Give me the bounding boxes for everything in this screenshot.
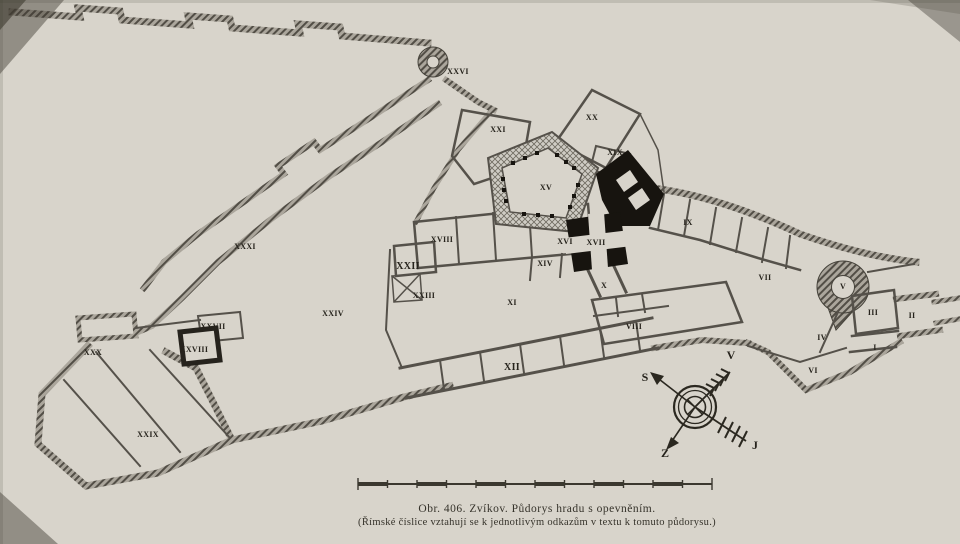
room-label-xix: XIX bbox=[607, 149, 623, 157]
room-label-i: I bbox=[873, 344, 876, 352]
room-label-xii: XII bbox=[504, 363, 520, 373]
room-label-xviii: XVIII bbox=[431, 236, 453, 244]
room-label-ii: II bbox=[909, 312, 916, 320]
figure-caption: Obr. 406. Zvíkov. Půdorys hradu s opevně… bbox=[114, 503, 960, 528]
room-label-xxx: XXX bbox=[84, 349, 102, 357]
room-label-xxii: XXII bbox=[396, 262, 419, 272]
room-label-xiv: XIV bbox=[537, 260, 553, 268]
room-label-xxvi: XXVI bbox=[447, 68, 469, 76]
room-label-x: X bbox=[601, 282, 607, 290]
room-label-iii: III bbox=[868, 309, 878, 317]
room-label-xv: XV bbox=[540, 184, 552, 192]
room-label-xvi: XVI bbox=[557, 238, 573, 246]
room-label-xvii: XVII bbox=[587, 239, 606, 247]
compass-letter-j: J bbox=[752, 439, 758, 451]
room-label-ix: IX bbox=[683, 219, 693, 227]
room-label-xx: XX bbox=[586, 114, 598, 122]
round-bastion-xxvi bbox=[418, 47, 448, 77]
room-label-xxviii: XXVIII bbox=[180, 346, 208, 354]
compass-letter-v: V bbox=[727, 349, 736, 361]
room-label-xxiv: XXIV bbox=[322, 310, 344, 318]
room-label-xxi: XXI bbox=[490, 126, 506, 134]
caption-line-2: (Římské číslice vztahují se k jednotlivý… bbox=[114, 517, 960, 528]
caption-line-1: Obr. 406. Zvíkov. Půdorys hradu s opevně… bbox=[114, 503, 960, 515]
castle-plan-drawing bbox=[0, 0, 960, 544]
compass-letter-s: S bbox=[642, 371, 649, 383]
room-label-iv: IV bbox=[817, 334, 827, 342]
paper-background bbox=[0, 0, 960, 544]
room-label-xxix: XXIX bbox=[137, 431, 159, 439]
scanned-figure-page: IIIIIIIVVVIVIIVIIIIXXXIXIIXIVXVXVIXVIIXV… bbox=[0, 0, 960, 544]
room-label-xi: XI bbox=[507, 299, 517, 307]
compass-letter-z: Z bbox=[661, 447, 669, 459]
room-label-viii: VIII bbox=[626, 323, 642, 331]
room-label-vi: VI bbox=[808, 367, 818, 375]
room-label-xxiii: XXIII bbox=[413, 292, 435, 300]
room-label-xxvii: XXVII bbox=[200, 323, 225, 331]
room-label-vii: VII bbox=[759, 274, 772, 282]
room-label-v: V bbox=[840, 283, 846, 291]
room-label-xxxi: XXXI bbox=[234, 243, 256, 251]
